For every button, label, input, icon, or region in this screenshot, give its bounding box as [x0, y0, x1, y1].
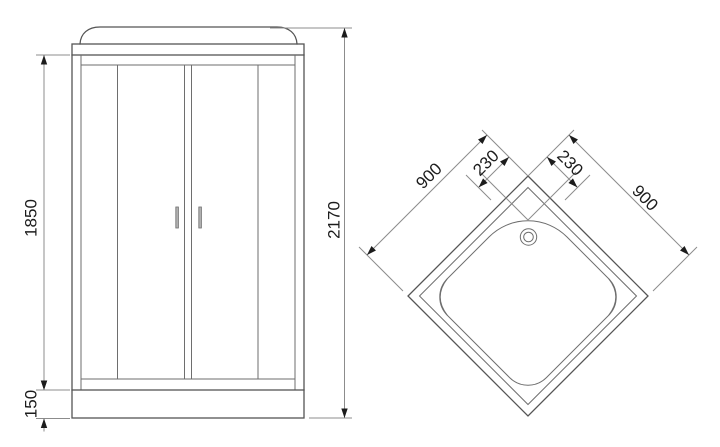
- tray-inner-rim: [420, 188, 637, 405]
- left-door-handle: [176, 207, 179, 228]
- dim-left-offset: 230: [466, 146, 509, 200]
- dim-left-offset-label: 230: [469, 146, 502, 179]
- dim-right-edge: 900: [569, 135, 697, 291]
- top-view-dimensions: 900 900 230 230: [359, 135, 697, 291]
- drain-outer-circle: [520, 229, 536, 245]
- dim-tray-height-label: 150: [22, 390, 41, 418]
- left-corner-arc: [440, 279, 447, 316]
- tray-base: [72, 390, 304, 418]
- dim-total-height: 2170: [270, 28, 352, 418]
- dim-left-edge-label: 900: [412, 159, 445, 192]
- shower-cabin-technical-drawing: 1850 150 2170: [0, 0, 720, 447]
- dim-total-height-label: 2170: [325, 201, 344, 239]
- front-view: [72, 27, 304, 418]
- tray-outer-rim: [408, 176, 648, 416]
- dim-right-edge-label: 900: [628, 181, 661, 214]
- dim-right-offset: 230: [547, 146, 590, 200]
- drain-inner-circle: [524, 232, 534, 242]
- dim-glass-height: 1850: [22, 55, 71, 390]
- right-corner-arc: [609, 279, 616, 316]
- front-view-dimensions: 1850 150 2170: [22, 28, 353, 432]
- dim-glass-height-label: 1850: [22, 199, 41, 237]
- top-frame-bar: [72, 44, 304, 55]
- drawing-canvas: 1850 150 2170: [0, 0, 720, 447]
- dim-tray-height: 150: [22, 377, 71, 432]
- dim-right-offset-label: 230: [553, 146, 586, 179]
- right-door-handle: [199, 207, 202, 228]
- roof-dome: [80, 27, 297, 44]
- dim-left-edge: 900: [359, 135, 487, 291]
